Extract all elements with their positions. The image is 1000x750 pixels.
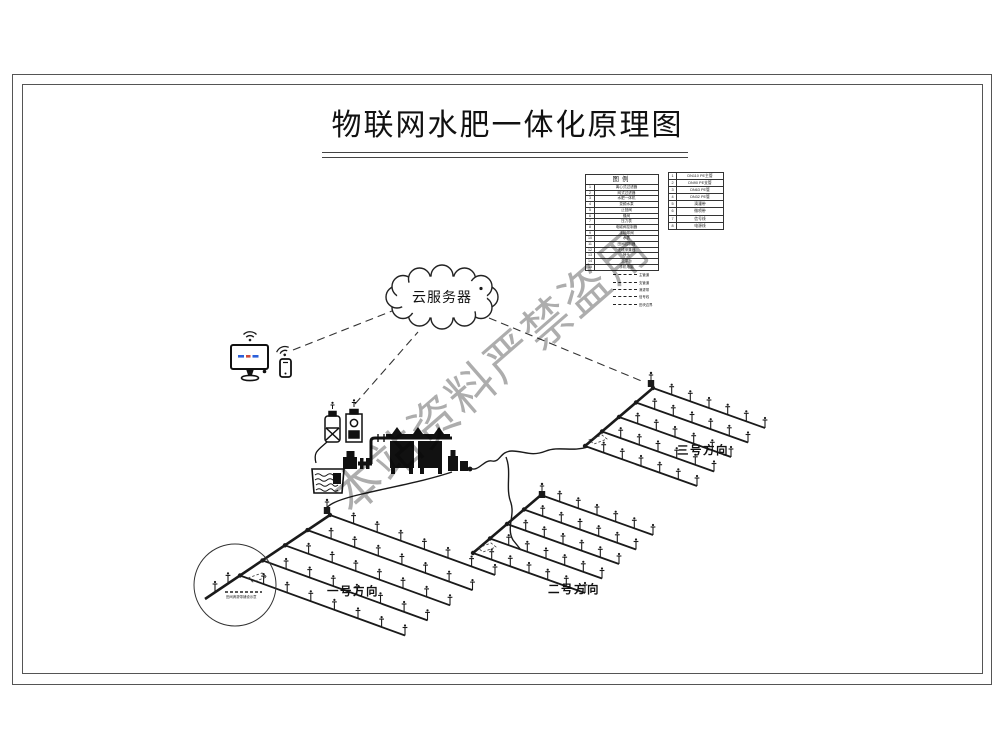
fertilizer-tank xyxy=(325,402,340,442)
phone-terminal xyxy=(276,345,292,377)
monitor-base xyxy=(242,375,259,380)
screen-pixel-red xyxy=(246,355,251,358)
schematic-drawing: 云服务器 xyxy=(0,0,1000,750)
suction-tube xyxy=(315,442,327,463)
cloud-dot xyxy=(479,287,482,290)
pipe-to-field1 xyxy=(326,472,452,513)
link-cloud-to-devices xyxy=(293,311,392,350)
field3-valve-controller xyxy=(648,372,654,387)
schematic-page: 物联网水肥一体化原理图 图例 1 离心式过滤器 2 网式过滤器 3 水肥一体机 … xyxy=(0,0,1000,750)
screen-pixel-blue xyxy=(238,355,244,358)
field3-label: 三号方向 xyxy=(677,443,729,457)
phone-button xyxy=(285,373,287,375)
field2-label: 二号方向 xyxy=(548,582,600,596)
field-grid-2: 二号方向 xyxy=(471,483,656,596)
pump-station xyxy=(312,399,472,493)
monitor-dot xyxy=(263,370,267,374)
field1-valve-controller xyxy=(324,499,330,514)
field2-valve-controller xyxy=(539,483,545,498)
monitor-stand xyxy=(246,369,254,375)
field1-label: 一号方向 xyxy=(327,584,379,598)
field-grid-1: 田间滴灌带铺设示意 一号方向 xyxy=(194,499,497,636)
cloud-server: 云服务器 xyxy=(386,265,498,329)
monitor-terminal xyxy=(231,332,268,381)
cloud-server-label: 云服务器 xyxy=(412,290,472,306)
callout-note: 田间滴灌带铺设示意 xyxy=(226,594,257,599)
field-grid-3: 三号方向 xyxy=(583,372,768,486)
pipe-to-field3 xyxy=(470,447,588,469)
wifi-icon xyxy=(276,345,292,359)
filter-fertigation-unit xyxy=(386,427,472,474)
water-source-tank xyxy=(312,469,344,493)
water-pump xyxy=(343,451,372,469)
wifi-icon xyxy=(244,332,257,342)
screen-pixel-blue xyxy=(253,355,259,358)
link-cloud-to-station xyxy=(355,332,418,404)
station-controller xyxy=(346,399,362,442)
link-cloud-to-field3 xyxy=(489,318,644,382)
